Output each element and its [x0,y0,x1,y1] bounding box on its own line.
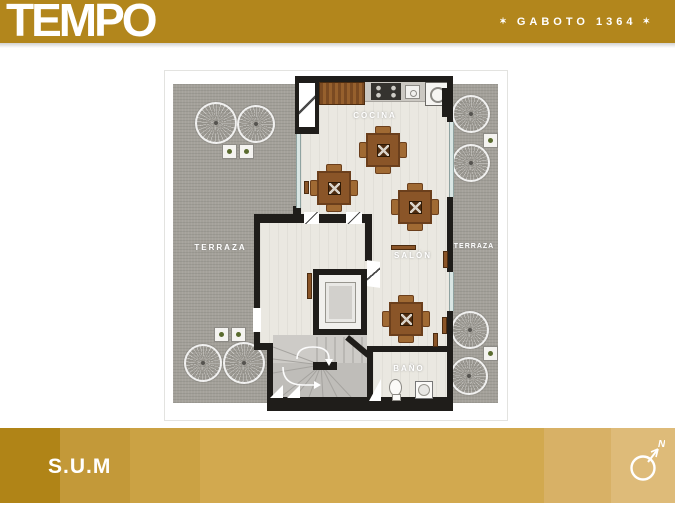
bathroom-sink [415,381,433,399]
elevator-car [326,283,355,322]
dining-table-2 [317,171,351,205]
footer-bar: S.U.M N [0,428,675,503]
door-leaf-salon [391,245,416,250]
door-entry-swing-a [270,385,283,398]
chair [391,199,399,215]
chair [359,142,367,158]
wall-hall-left-a [254,223,260,308]
footer-segment [200,428,544,503]
wall-bottom [267,397,453,411]
kitchen-grill [319,82,365,105]
side-table [483,346,498,361]
window-left [296,134,301,208]
door-leaf-hall [307,273,312,299]
door-hall-b [346,212,362,224]
door-leaf-bath [433,333,438,347]
chair [399,142,407,158]
umbrella [184,344,222,382]
stove [371,83,401,100]
label-bano: BAÑO [373,364,445,373]
window-right-upper [449,122,454,197]
side-table [214,327,229,342]
umbrella [195,102,237,144]
chair [375,166,391,174]
door-hall-salon [367,260,380,288]
room-title: S.U.M [48,455,111,479]
footer-segment [544,428,611,503]
presentation-slide: TEMPO ✶ GABOTO 1364 ✶ [0,0,675,506]
door-kitchen-terrace [299,83,315,127]
compass-icon: N [615,436,665,486]
label-salon: SALÓN [365,251,461,260]
star-icon: ✶ [642,16,650,27]
umbrella [237,105,275,143]
umbrella [452,95,490,133]
umbrella [452,144,490,182]
project-name: ✶ GABOTO 1364 ✶ [499,0,650,43]
toilet [389,379,402,396]
door-hall-a [304,212,319,224]
chair [422,311,430,327]
footer-segment [130,428,200,503]
floor-plan: COCINA TERRAZA TERRAZA SALÓN BAÑO [164,70,508,421]
side-table [222,144,237,159]
umbrella [451,311,489,349]
dining-table-3 [398,190,432,224]
project-name-text: GABOTO 1364 [517,16,637,28]
header-shadow [0,43,675,48]
chair [407,183,423,191]
window-handle [304,181,309,194]
dining-table-1 [366,133,400,167]
chair [350,180,358,196]
chair [398,335,414,343]
label-terraza-right: TERRAZA [450,243,498,250]
brand-logo: TEMPO [6,0,155,44]
chair [407,223,423,231]
side-table [239,144,254,159]
hall-floor [260,223,301,346]
label-cocina: COCINA [301,111,449,120]
star-icon: ✶ [499,16,507,27]
door-leaf-right-lower [442,317,447,334]
chair [431,199,439,215]
chair [375,126,391,134]
chair [326,204,342,212]
header-bar: TEMPO ✶ GABOTO 1364 ✶ [0,0,675,43]
wall-bath-top [367,346,453,352]
side-table [231,327,246,342]
compass-north-label: N [658,439,665,450]
dining-table-4 [389,302,423,336]
door-bath-swing [369,379,381,401]
kitchen-sink [405,85,420,99]
umbrella [450,357,488,395]
chair [310,180,318,196]
chair [382,311,390,327]
label-terraza-left: TERRAZA [173,243,268,252]
chair [326,164,342,172]
side-table [483,133,498,148]
door-entry-swing-b [287,385,300,398]
door-hall-terrace [253,308,261,332]
chair [398,295,414,303]
window-right-lower [449,272,454,311]
wall-right-bottom [447,311,453,411]
